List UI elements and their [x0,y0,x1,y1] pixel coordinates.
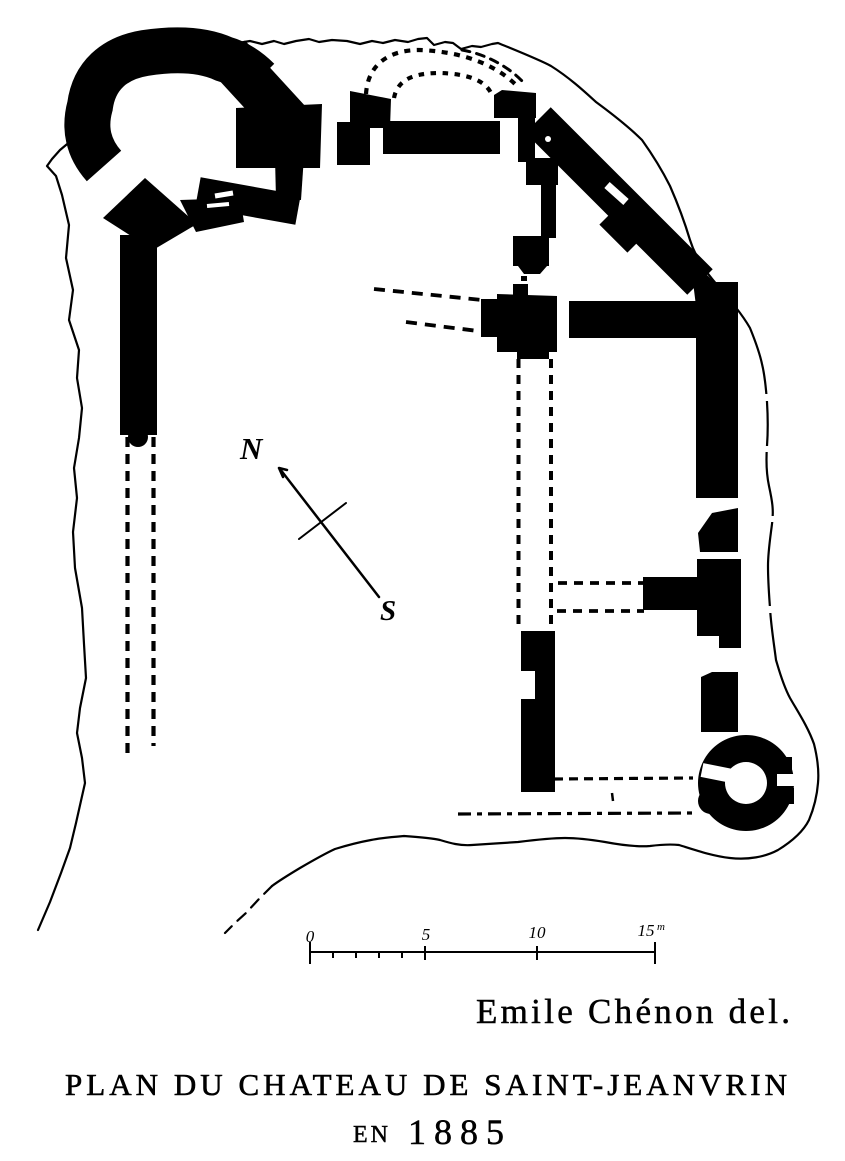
svg-text:m: m [657,921,665,933]
svg-text:S: S [380,595,396,627]
svg-text:N: N [239,431,264,466]
svg-text:EN: EN [353,1122,391,1148]
svg-text:0: 0 [306,927,315,946]
svg-text:5: 5 [422,925,431,944]
svg-text:10: 10 [529,923,547,942]
svg-text:15: 15 [638,921,655,940]
svg-text:PLAN DU CHATEAU DE SAINT-JEANV: PLAN DU CHATEAU DE SAINT-JEANVRIN [65,1067,792,1102]
